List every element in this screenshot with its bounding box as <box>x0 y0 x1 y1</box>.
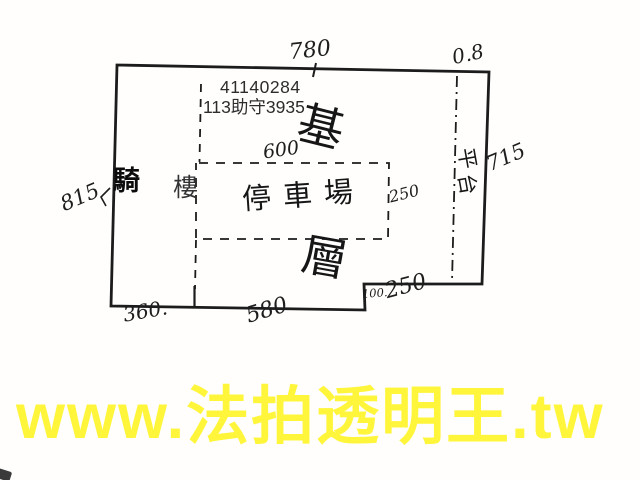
dimension-top-right: 0.8 <box>450 41 485 67</box>
stamp-case-number: 41140284 <box>220 79 301 97</box>
dimension-top-width: 780 <box>288 38 332 64</box>
platform-label-char1: 平 <box>454 146 478 170</box>
arcade-label-char2: 樓 <box>173 175 198 200</box>
floor-label-bottom-char: 層 <box>298 231 350 283</box>
left-dimension-arrow <box>101 188 110 206</box>
scanned-floor-plan-page: 780 0.8 815 715 600 250 360. 580 100. 25… <box>0 0 640 480</box>
site-watermark: www.法拍透明王.tw <box>16 386 605 449</box>
arcade-label-char1: 騎 <box>113 168 140 195</box>
stamp-case-reference: 113助守3935 <box>203 99 305 117</box>
platform-label: 平 台 <box>456 148 477 195</box>
arcade-dashed-line-upper <box>200 84 202 162</box>
arcade-dashed-line-lower <box>195 240 196 289</box>
parking-lot-label: 停車場 <box>241 177 366 215</box>
platform-label-char2: 台 <box>454 172 478 196</box>
